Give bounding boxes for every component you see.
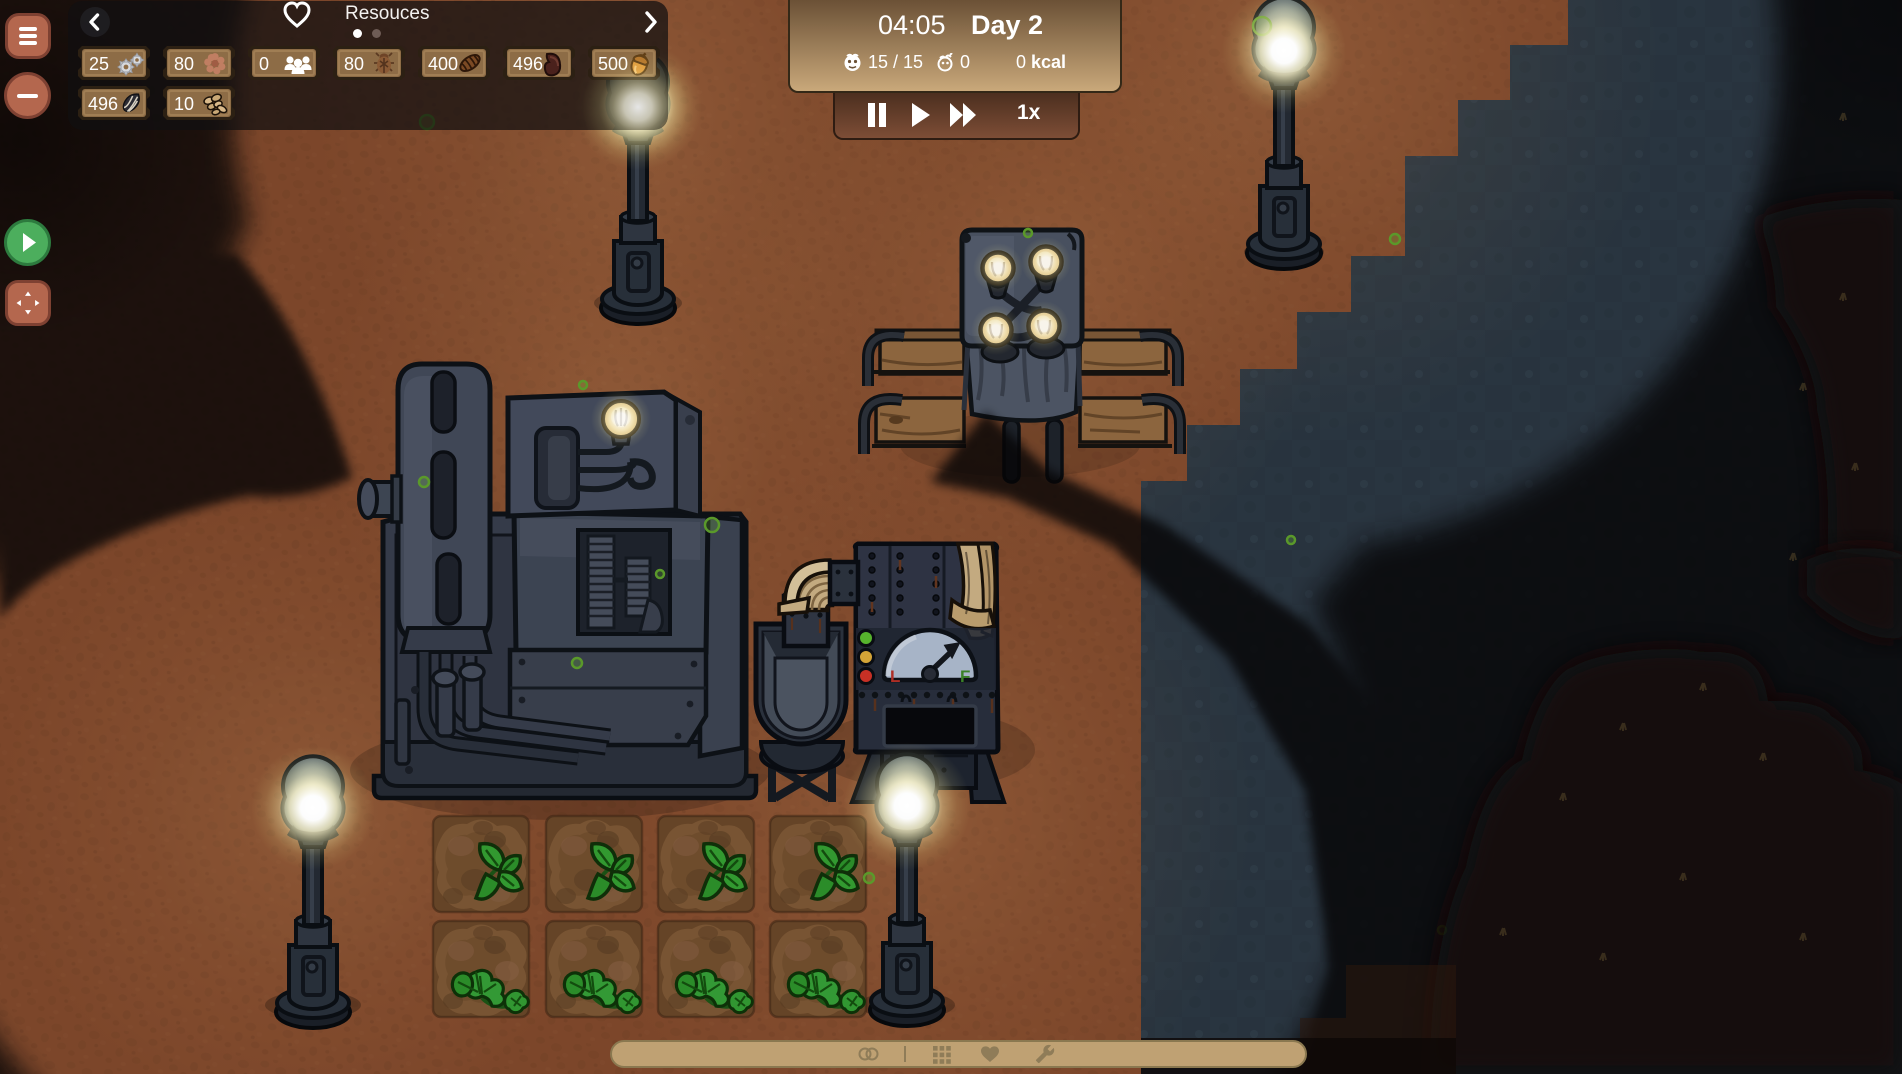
svg-text:400: 400 xyxy=(428,54,458,74)
svg-text:80: 80 xyxy=(174,54,194,74)
svg-text:80: 80 xyxy=(344,54,364,74)
svg-text:500: 500 xyxy=(598,54,628,74)
svg-text:496: 496 xyxy=(88,94,118,114)
svg-text:496: 496 xyxy=(513,54,543,74)
svg-text:0: 0 xyxy=(259,54,269,74)
svg-text:25: 25 xyxy=(89,54,109,74)
svg-text:10: 10 xyxy=(174,94,194,114)
